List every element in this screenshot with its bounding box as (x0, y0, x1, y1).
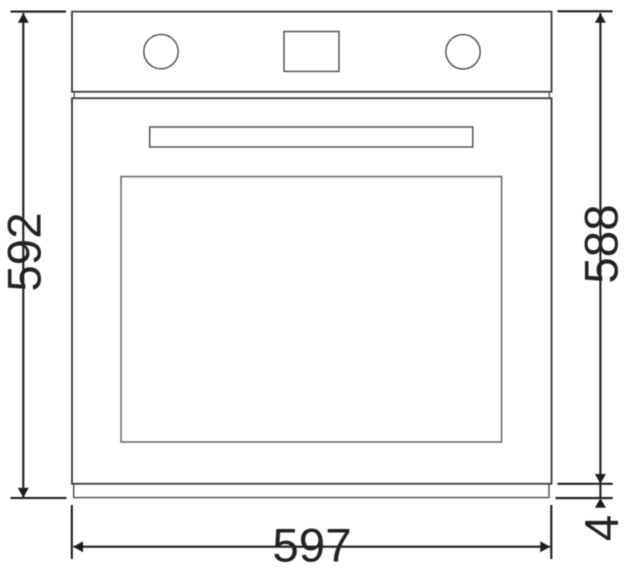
svg-text:597: 597 (272, 520, 351, 568)
svg-text:592: 592 (0, 212, 51, 291)
svg-text:588: 588 (575, 204, 625, 283)
svg-text:4: 4 (576, 515, 625, 541)
